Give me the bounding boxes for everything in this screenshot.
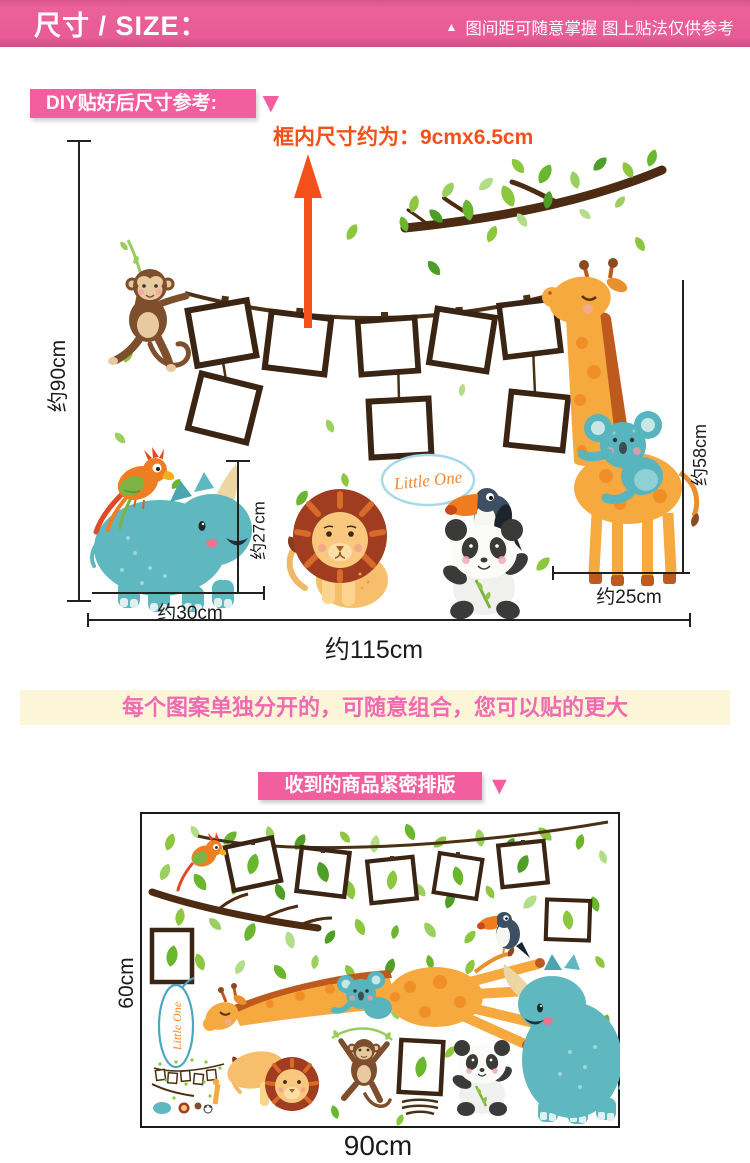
- frame-size-arrow: [294, 154, 322, 328]
- photo-frames: [188, 299, 569, 458]
- diy-size-label: DIY贴好后尺寸参考:: [30, 89, 256, 118]
- dim-rhino-horn-height: 约27cm: [245, 486, 270, 576]
- packed-dim-height: 60cm: [115, 938, 139, 1028]
- dim-total-height: 约90cm: [42, 316, 72, 436]
- header-note-text: 图间距可随意掌握 图上贴法仅供参考: [465, 15, 734, 39]
- triangle-up-icon: ▲: [446, 20, 458, 34]
- header-note: ▲ 图间距可随意掌握 图上贴法仅供参考: [446, 0, 734, 47]
- packed-little-one-text: Little One: [170, 1001, 184, 1051]
- packed-dim-width: 90cm: [278, 1130, 478, 1162]
- header-bar: 尺寸 / SIZE： ▲ 图间距可随意掌握 图上贴法仅供参考: [0, 0, 750, 47]
- triangle-down-icon: ▼: [257, 89, 285, 117]
- packed-panda: [450, 1040, 514, 1116]
- dim-giraffe-height: 约58cm: [686, 405, 712, 505]
- page-title: 尺寸 / SIZE：: [34, 4, 208, 43]
- packed-layout-ribbon: 收到的商品紧密排版: [258, 772, 482, 800]
- monkey: [108, 240, 188, 372]
- triangle-down-icon: ▼: [487, 772, 512, 800]
- dim-giraffe-width: 约25cm: [569, 582, 689, 609]
- product-size-page: 尺寸 / SIZE： ▲ 图间距可随意掌握 图上贴法仅供参考 DIY贴好后尺寸参…: [0, 0, 750, 1163]
- tree-branch: [397, 148, 662, 244]
- lion: [285, 489, 388, 608]
- dim-rhino-width: 约30cm: [130, 598, 250, 625]
- dim-total-width: 约115cm: [274, 630, 474, 666]
- packed-sheet-diagram: Little One: [140, 812, 620, 1128]
- panda: [440, 519, 532, 622]
- combine-hint-banner: 每个图案单独分开的，可随意组合，您可以贴的更大: [20, 690, 730, 725]
